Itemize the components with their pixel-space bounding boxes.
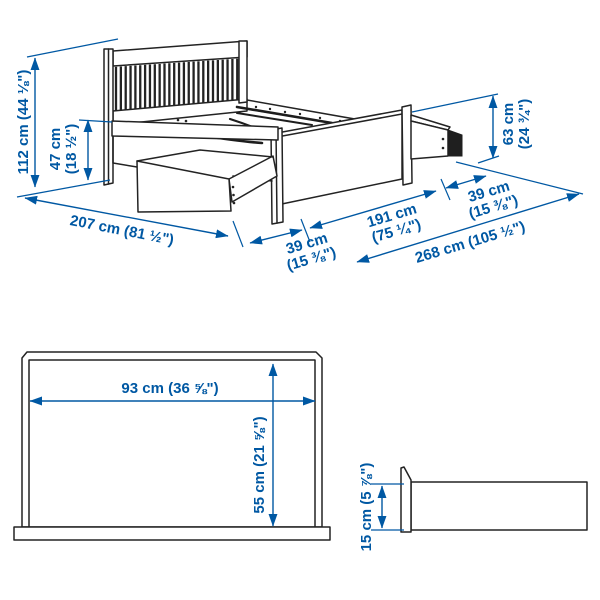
drawer-end-cap (448, 130, 462, 156)
extension-line (17, 180, 110, 197)
foot-side-drawer (411, 115, 462, 159)
drawer-side-view: 15 cm (5 ⅞") (358, 463, 587, 552)
bed-isometric-view (104, 41, 462, 224)
headboard (104, 41, 247, 185)
dim-drawer-width-label: 93 cm (36 ⅝") (121, 380, 218, 397)
screw-hole (185, 120, 188, 123)
headboard-right-post (239, 41, 247, 103)
drawer-inner-edges (137, 150, 273, 161)
dim-rail-height-in: (18 ½") (63, 124, 80, 174)
dim-drawer-height-label: 15 cm (5 ⅞") (358, 463, 375, 552)
dim-rail-height-cm: 47 cm (47, 128, 64, 171)
screw-hole (442, 147, 445, 150)
diagram-canvas: 112 cm (44 ⅛") 47 cm (18 ½") 63 cm (24 ¾… (0, 0, 600, 600)
dim-footboard-height-cm: 63 cm (500, 103, 517, 146)
screw-hole (233, 202, 236, 205)
drawer-top-view: 93 cm (36 ⅝") 55 cm (21 ⅝") (14, 352, 330, 540)
dim-drawer-depth-label: 55 cm (21 ⅝") (251, 416, 268, 513)
side-rail-board (112, 121, 278, 140)
screw-hole (177, 119, 180, 122)
drawer-front-edge (14, 527, 330, 540)
screw-hole (232, 194, 235, 197)
dim-headboard-height-label: 112 cm (44 ⅛") (15, 70, 32, 175)
footboard (271, 105, 412, 224)
dim-footboard-height-in: (24 ¾") (516, 99, 533, 149)
screw-hole (442, 138, 445, 141)
drawer-front-panel-profile (401, 467, 411, 532)
footboard-panel (277, 110, 402, 205)
screw-hole (232, 186, 235, 189)
drawer-side-profile (411, 482, 587, 530)
drawer-box-outline (22, 352, 322, 527)
dim-total-width-label: 268 cm (105 ½") (413, 218, 527, 267)
extension-line (478, 156, 499, 163)
dim-length-label: 207 cm (81 ½") (68, 212, 175, 249)
extension-tick (233, 221, 243, 247)
extension-line (412, 94, 498, 112)
dimension-diagram-page: 112 cm (44 ⅛") 47 cm (18 ½") 63 cm (24 ¾… (0, 0, 600, 600)
drawer-side-wall (229, 156, 277, 202)
drawer-front-panel (137, 161, 231, 212)
front-storage-drawer (137, 150, 277, 212)
extension-tick (441, 179, 450, 200)
